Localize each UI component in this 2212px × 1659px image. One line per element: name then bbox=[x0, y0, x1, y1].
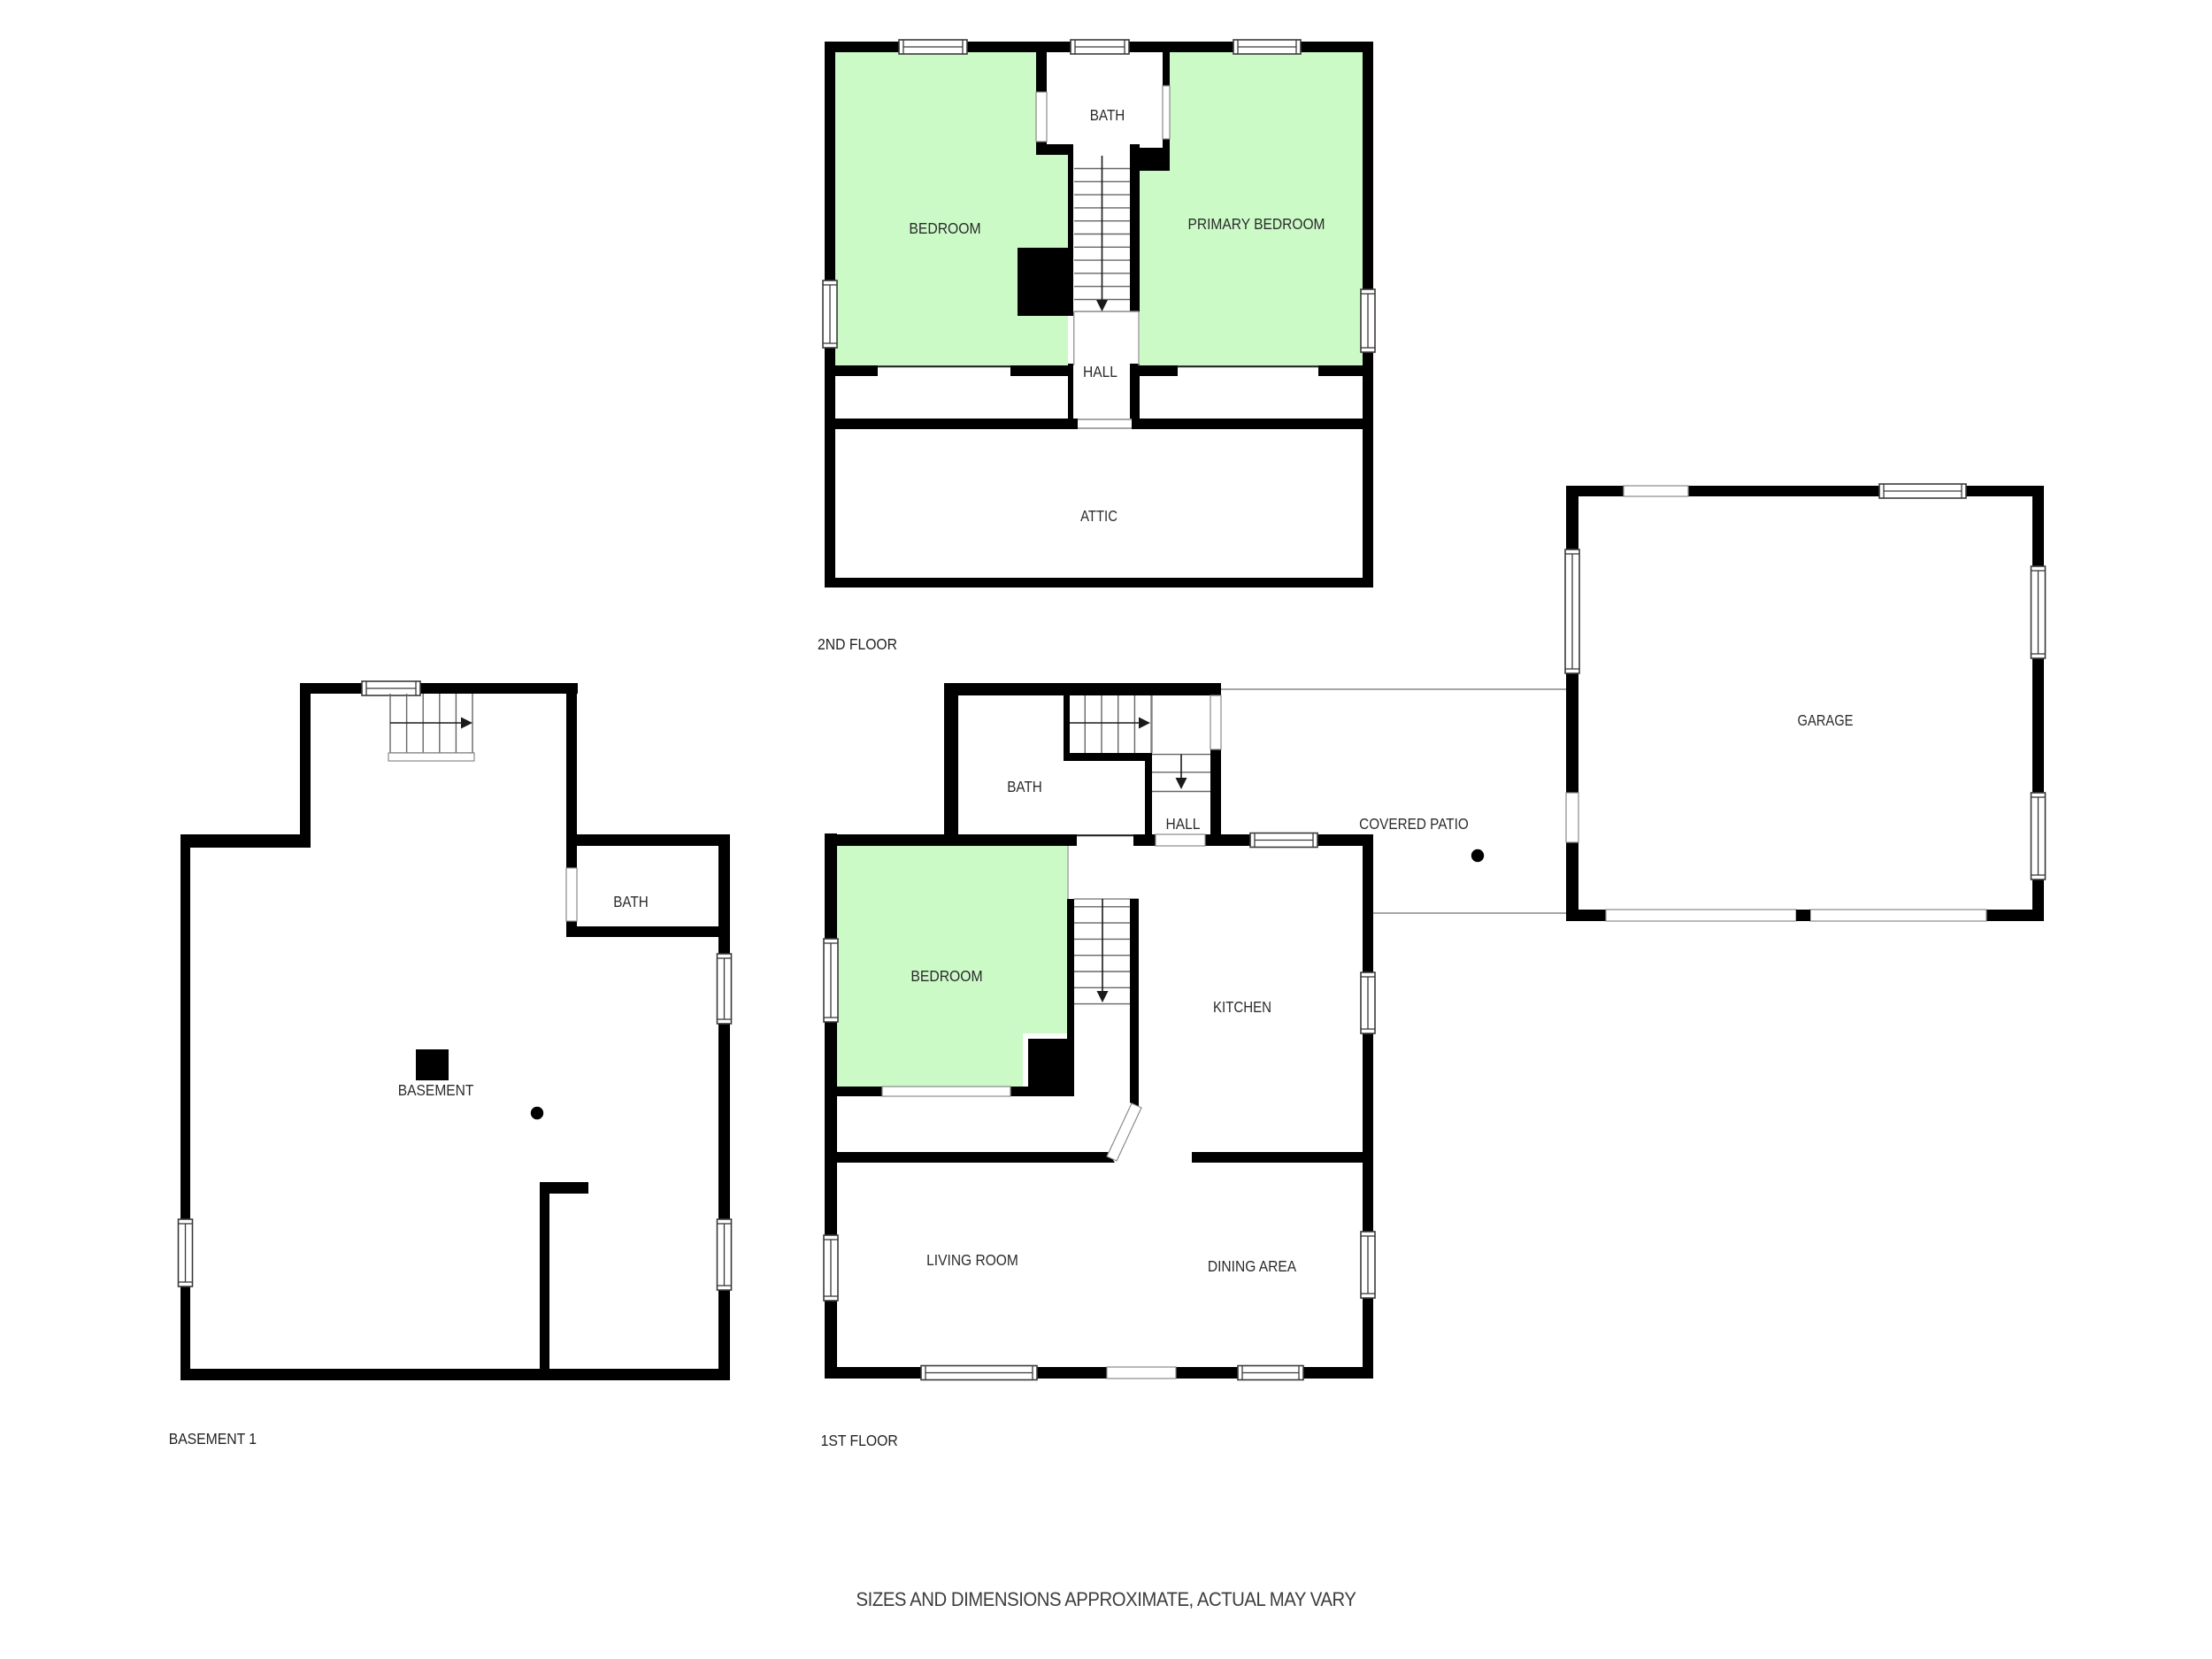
svg-text:BASEMENT: BASEMENT bbox=[398, 1081, 474, 1099]
svg-text:BEDROOM: BEDROOM bbox=[909, 219, 980, 237]
svg-text:1ST FLOOR: 1ST FLOOR bbox=[821, 1432, 898, 1449]
svg-text:BATH: BATH bbox=[613, 894, 648, 910]
svg-text:HALL: HALL bbox=[1166, 815, 1201, 833]
svg-text:BATH: BATH bbox=[1007, 779, 1041, 795]
svg-text:COVERED PATIO: COVERED PATIO bbox=[1359, 816, 1469, 833]
svg-text:2ND FLOOR: 2ND FLOOR bbox=[818, 635, 897, 653]
svg-text:BEDROOM: BEDROOM bbox=[910, 967, 982, 985]
svg-text:SIZES AND DIMENSIONS APPROXIMA: SIZES AND DIMENSIONS APPROXIMATE, ACTUAL… bbox=[856, 1588, 1356, 1610]
svg-text:KITCHEN: KITCHEN bbox=[1213, 999, 1271, 1016]
svg-text:DINING AREA: DINING AREA bbox=[1208, 1257, 1296, 1275]
svg-text:GARAGE: GARAGE bbox=[1798, 712, 1854, 729]
svg-text:BASEMENT 1: BASEMENT 1 bbox=[169, 1430, 257, 1448]
svg-text:BATH: BATH bbox=[1090, 107, 1125, 124]
svg-text:HALL: HALL bbox=[1083, 363, 1118, 380]
svg-text:ATTIC: ATTIC bbox=[1080, 508, 1118, 525]
svg-text:PRIMARY BEDROOM: PRIMARY BEDROOM bbox=[1187, 215, 1325, 233]
svg-text:LIVING ROOM: LIVING ROOM bbox=[926, 1251, 1018, 1269]
